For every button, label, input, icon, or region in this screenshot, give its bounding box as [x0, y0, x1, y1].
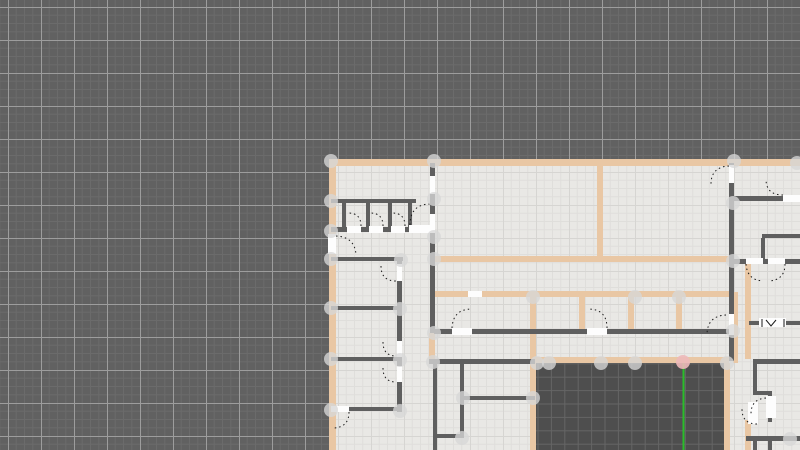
wall-node-handle[interactable] — [427, 252, 441, 266]
wall-tan[interactable] — [724, 363, 730, 450]
wall-partition[interactable] — [753, 364, 757, 393]
wall-partition[interactable] — [761, 238, 765, 261]
wall-node-handle[interactable] — [526, 290, 540, 304]
door-opening[interactable] — [468, 291, 482, 297]
wall-partition[interactable] — [331, 357, 400, 361]
wall-node-handle[interactable] — [783, 432, 797, 446]
selected-node-handle[interactable] — [676, 355, 690, 369]
wall-node-handle[interactable] — [427, 192, 441, 206]
wall-tan[interactable] — [745, 263, 751, 359]
wall-node-handle[interactable] — [726, 196, 740, 210]
wall-node-handle[interactable] — [393, 302, 407, 316]
wall-partition[interactable] — [434, 329, 732, 334]
wall-node-handle[interactable] — [394, 253, 408, 267]
door-opening[interactable] — [391, 226, 405, 233]
door-opening[interactable] — [430, 176, 435, 194]
wall-partition[interactable] — [768, 441, 772, 450]
door-opening[interactable] — [768, 258, 785, 264]
door-opening[interactable] — [748, 402, 758, 424]
wall-node-handle[interactable] — [456, 391, 470, 405]
wall-tan[interactable] — [597, 165, 603, 256]
wall-node-handle[interactable] — [324, 252, 338, 266]
wall-node-handle[interactable] — [726, 254, 740, 268]
window-opening[interactable] — [759, 318, 786, 327]
wall-node-handle[interactable] — [324, 352, 338, 366]
courtyard-area[interactable] — [536, 362, 724, 450]
floorplan-canvas[interactable] — [0, 0, 800, 450]
wall-node-handle[interactable] — [427, 154, 441, 168]
wall-node-handle[interactable] — [324, 224, 338, 238]
wall-partition[interactable] — [429, 359, 535, 364]
door-opening[interactable] — [409, 225, 431, 233]
door-opening[interactable] — [766, 396, 776, 418]
wall-partition[interactable] — [734, 259, 800, 264]
wall-node-handle[interactable] — [324, 154, 338, 168]
wall-node-handle[interactable] — [526, 391, 540, 405]
wall-node-handle[interactable] — [727, 154, 741, 168]
wall-node-handle[interactable] — [542, 356, 556, 370]
wall-node-handle[interactable] — [628, 356, 642, 370]
wall-node-handle[interactable] — [594, 356, 608, 370]
wall-partition[interactable] — [366, 203, 370, 228]
wall-tan[interactable] — [530, 292, 536, 450]
wall-node-handle[interactable] — [726, 324, 740, 338]
wall-node-handle[interactable] — [324, 301, 338, 315]
wall-node-handle[interactable] — [324, 403, 338, 417]
door-opening[interactable] — [783, 195, 800, 202]
wall-tan[interactable] — [329, 254, 336, 450]
wall-tan[interactable] — [434, 256, 733, 262]
door-opening[interactable] — [347, 226, 361, 233]
wall-node-handle[interactable] — [628, 290, 642, 304]
wall-node-handle[interactable] — [426, 355, 440, 369]
wall-node-handle[interactable] — [393, 353, 407, 367]
wall-node-handle[interactable] — [672, 290, 686, 304]
wall-partition[interactable] — [430, 258, 435, 333]
door-opening[interactable] — [369, 226, 383, 233]
wall-partition[interactable] — [753, 441, 757, 450]
door-opening[interactable] — [746, 258, 763, 264]
wall-node-handle[interactable] — [455, 431, 469, 445]
wall-partition[interactable] — [462, 396, 535, 400]
window-symbol — [759, 318, 786, 327]
door-opening[interactable] — [397, 366, 402, 382]
wall-partition[interactable] — [342, 203, 346, 228]
door-opening[interactable] — [452, 328, 472, 335]
wall-node-handle[interactable] — [393, 404, 407, 418]
plan-viewport[interactable] — [0, 0, 800, 450]
wall-partition[interactable] — [331, 257, 403, 261]
wall-partition[interactable] — [331, 199, 416, 203]
wall-node-handle[interactable] — [427, 326, 441, 340]
wall-partition[interactable] — [388, 203, 392, 228]
wall-tan[interactable] — [745, 420, 751, 450]
wall-partition[interactable] — [331, 306, 400, 310]
wall-node-handle[interactable] — [427, 230, 441, 244]
wall-tan[interactable] — [579, 297, 585, 330]
wall-node-handle[interactable] — [530, 356, 544, 370]
wall-node-handle[interactable] — [720, 356, 734, 370]
wall-partition[interactable] — [397, 261, 402, 412]
door-opening[interactable] — [587, 328, 607, 335]
wall-partition[interactable] — [762, 234, 800, 238]
wall-node-handle[interactable] — [324, 194, 338, 208]
wall-partition[interactable] — [753, 359, 800, 364]
wall-partition[interactable] — [753, 391, 772, 395]
